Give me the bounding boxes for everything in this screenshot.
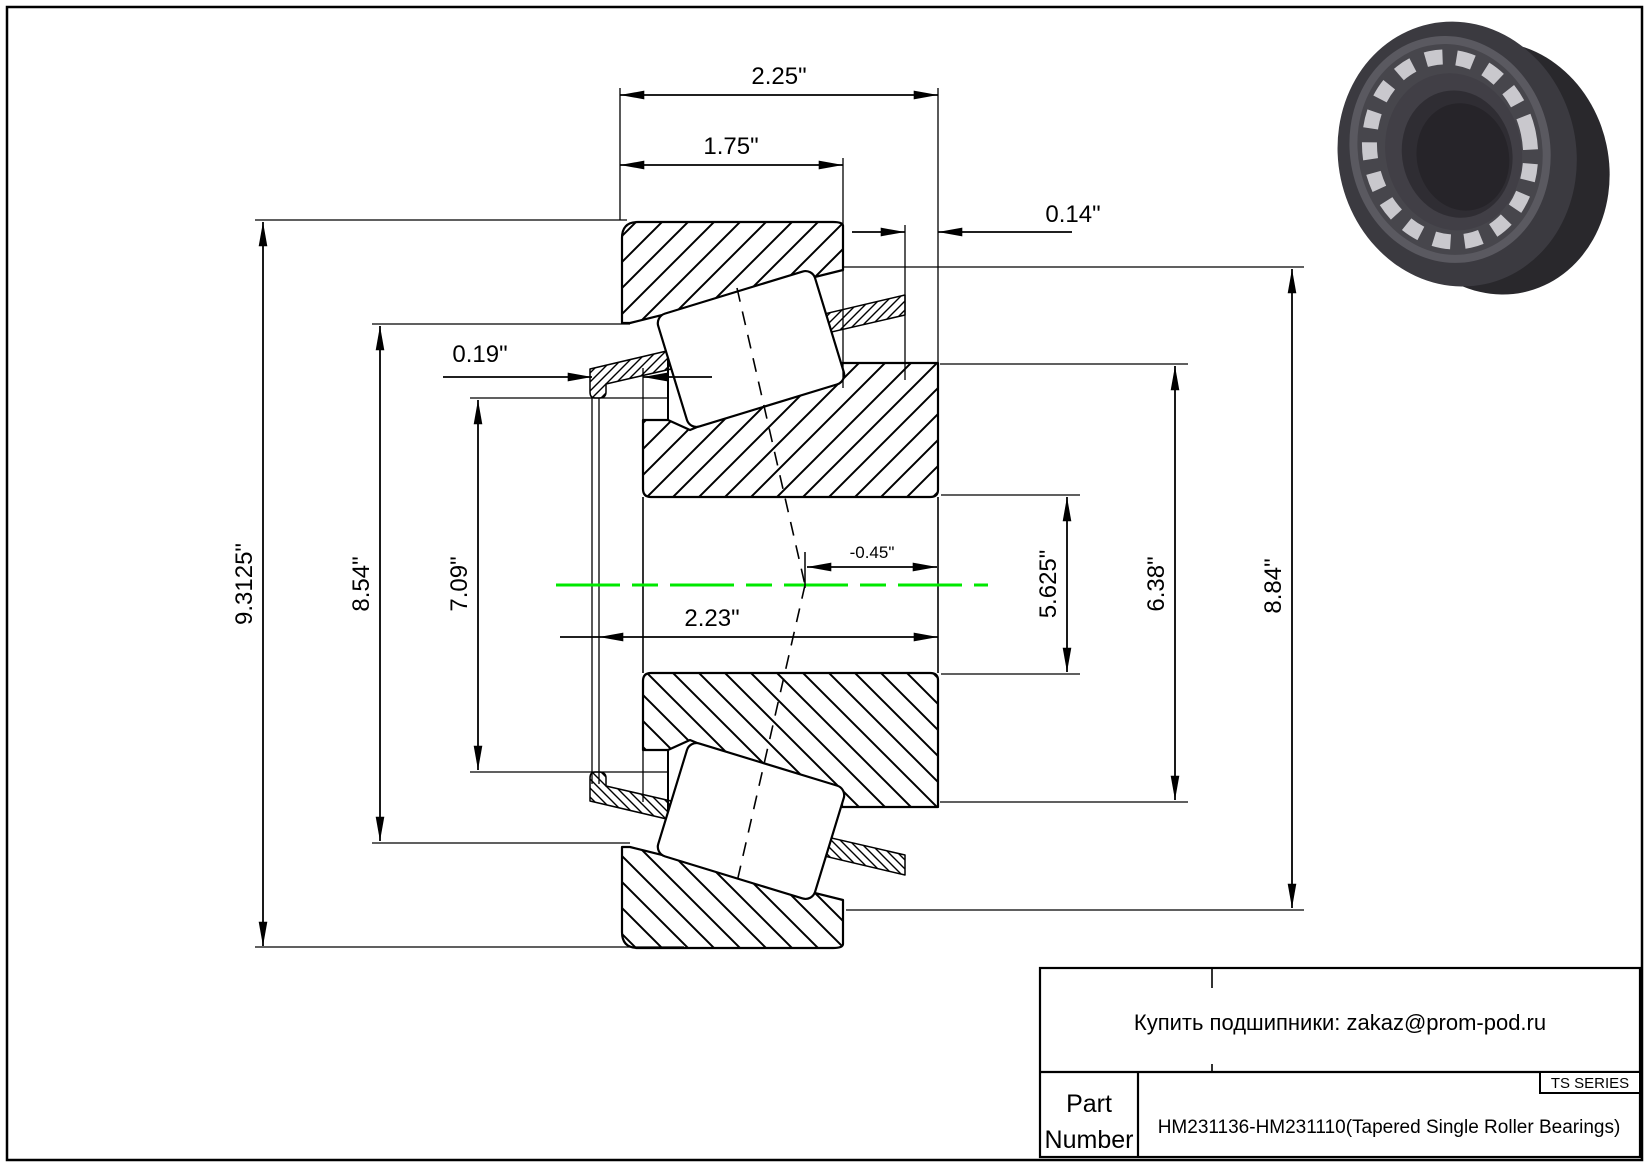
dim-cup-width-label: 1.75" [703,133,758,160]
part-label-line1: Part [1066,1090,1112,1118]
dim-cage-lip-label: 0.19" [452,341,507,368]
series-label: TS SERIES [1551,1075,1629,1092]
contact-text: Купить подшипники: zakaz@prom-pod.ru [1134,1010,1546,1035]
dim-cone-rib-od-label: 7.09" [446,556,473,611]
dim-standout: 0.14" [852,201,1101,380]
dim-cup-front-id-label: 8.54" [348,556,375,611]
dim-race-od-label: 8.84" [1260,558,1287,613]
dim-cone-width: 2.23" [560,605,938,637]
bearing-cross-section [556,222,988,948]
dim-cone-back-rib-od-label: 6.38" [1143,556,1170,611]
bearing-drawing-canvas: 2.25" 1.75" 0.14" 0.19" 9.3125" [0,0,1649,1167]
dim-standout-label: 0.14" [1045,201,1100,228]
dim-cup-od-label: 9.3125" [231,543,258,625]
dim-effective-center-label: -0.45" [850,543,895,562]
part-number-text: HM231136-HM231110(Tapered Single Roller … [1158,1117,1621,1138]
dim-effective-center: -0.45" [805,543,937,588]
title-block: Купить подшипники: zakaz@prom-pod.ru Par… [1040,968,1640,1157]
dim-cone-back-rib-od: 6.38" [940,364,1188,802]
part-label-line2: Number [1045,1126,1134,1154]
drawing-sheet: 2.25" 1.75" 0.14" 0.19" 9.3125" [0,0,1649,1167]
dim-total-width-label: 2.25" [751,63,806,90]
dim-cone-width-label: 2.23" [684,605,739,632]
dim-bore-label: 5.625" [1035,550,1062,619]
bearing-photo [1313,0,1633,325]
